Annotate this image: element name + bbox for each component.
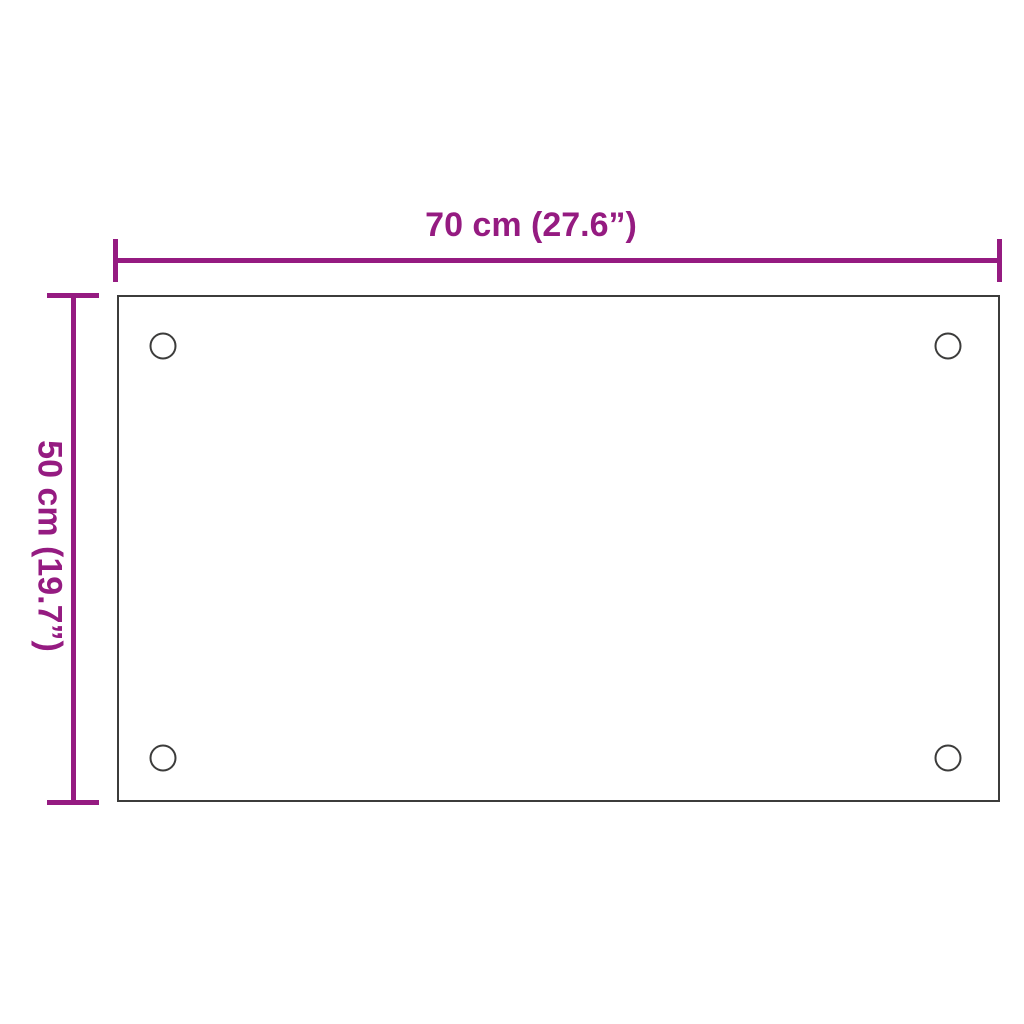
width-dimension-cap-right bbox=[997, 239, 1002, 282]
mounting-hole bbox=[935, 333, 962, 360]
height-dimension-cap-bottom bbox=[47, 800, 99, 805]
width-dimension-label: 70 cm (27.6”) bbox=[425, 207, 637, 244]
mounting-hole bbox=[150, 745, 177, 772]
panel-outline bbox=[117, 295, 1000, 802]
width-dimension-line bbox=[115, 258, 1000, 263]
dimension-diagram: 70 cm (27.6”) 50 cm (19.7”) bbox=[0, 0, 1024, 1024]
mounting-hole bbox=[150, 333, 177, 360]
height-dimension-cap-top bbox=[47, 293, 99, 298]
height-dimension-label: 50 cm (19.7”) bbox=[30, 440, 67, 652]
height-dimension-line bbox=[71, 295, 76, 803]
mounting-hole bbox=[935, 745, 962, 772]
width-dimension-cap-left bbox=[113, 239, 118, 282]
